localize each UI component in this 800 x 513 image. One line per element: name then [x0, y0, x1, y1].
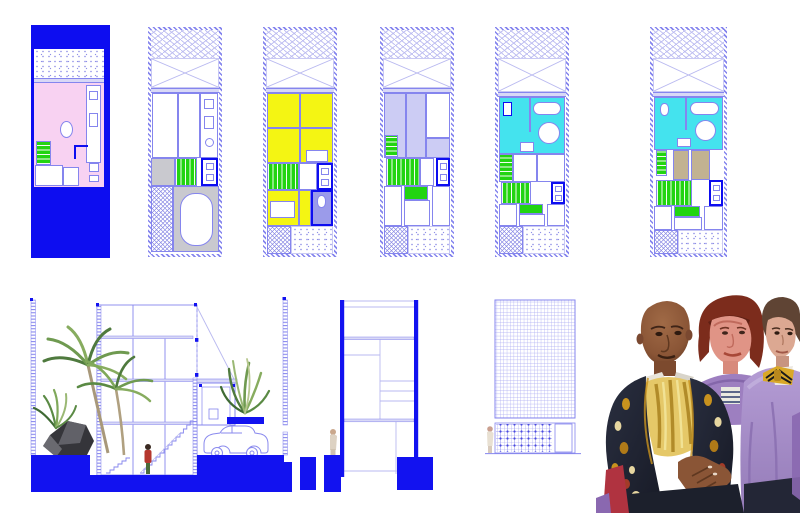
plan6-shower-icon: [695, 120, 716, 141]
plan1-wc-icon: [89, 163, 99, 172]
plan5-court-hatch: [499, 226, 523, 254]
plan3-partition-h: [268, 127, 332, 129]
plan6-bed-b: [691, 150, 710, 180]
plan1-room-b: [63, 167, 79, 186]
plan5-wc-icon: [555, 186, 562, 192]
plan4-slab: [426, 138, 450, 158]
plan4-wc-icon: [440, 163, 447, 170]
plan1-sink-icon: [89, 113, 98, 127]
plan5-basin-icon: [520, 142, 534, 152]
plan2-basin2-icon: [206, 174, 214, 181]
plan6-toilet-icon: [660, 103, 669, 116]
plan4-court-hatch: [384, 226, 408, 254]
perforated-screen: [496, 424, 552, 452]
plan3-yellow-room-b: [267, 190, 299, 226]
plan5-room-e: [547, 204, 565, 226]
plan6-bathtub-icon: [690, 102, 719, 115]
plan2-terrace: [151, 30, 219, 58]
plan4-room-e: [432, 186, 450, 226]
tower-floor-slabs: [344, 337, 414, 422]
plan5-toilet-icon: [503, 102, 512, 116]
plan6-room-a: [654, 206, 672, 230]
plan1-basin-icon: [89, 175, 99, 182]
purple-corner: [596, 493, 611, 513]
plan6-court-hatch: [654, 230, 678, 254]
floor-plan-3: [263, 27, 337, 257]
plan2-court-hatch: [151, 186, 173, 252]
plan6-basin-icon: [677, 138, 691, 147]
plan6-partition: [685, 98, 687, 130]
long-section-with-landscape: [28, 293, 298, 498]
plan5-green-block: [519, 204, 543, 214]
plan4-stair: [386, 158, 420, 186]
plan3-toilet-icon: [317, 195, 326, 208]
building-wall-left: [97, 305, 101, 475]
plan6-void: [653, 58, 724, 92]
plan6-basin2-icon: [713, 195, 720, 201]
mesh-facade: [495, 300, 575, 418]
plan3-terrace: [266, 30, 334, 58]
presentation-board: [0, 0, 800, 513]
plan4-room-d: [404, 200, 430, 226]
plan2-bath-slab: [173, 186, 219, 252]
plan3-wc-icon: [321, 168, 329, 175]
plan2-wc-icon: [206, 163, 214, 170]
plan3-void: [266, 58, 334, 88]
plan5-wc: [551, 182, 565, 204]
plan6-bathroom: [654, 97, 723, 150]
plan2-sink-icon: [204, 116, 214, 129]
plan4-terrace: [383, 30, 451, 58]
plan5-room-c: [499, 204, 517, 226]
site-column-right-low: [283, 432, 288, 455]
plan3-yellow-room: [267, 93, 333, 163]
site-column-left: [31, 300, 36, 455]
plan3-yellow-strip: [299, 190, 311, 226]
plan5-stair-upper: [499, 154, 513, 182]
person-figure-elevation: [487, 426, 494, 453]
plan5-bathroom: [499, 97, 565, 154]
tower-wall-right: [414, 300, 418, 477]
plan5-court-stipple: [523, 226, 565, 254]
plan1-table-icon: [60, 121, 73, 138]
planter-sill: [227, 417, 264, 424]
cross-section-tower: [296, 293, 444, 498]
plan1-room-a: [35, 165, 63, 186]
plan4-hall: [420, 158, 434, 186]
plan4-stair-upper: [385, 135, 398, 157]
plan6-terrace: [653, 30, 724, 58]
floor-plan-2: [148, 27, 222, 257]
plan5-stair: [501, 182, 531, 204]
plan5-room-a: [513, 154, 537, 182]
plan6-wc: [709, 180, 723, 206]
plan4-green-block: [404, 186, 428, 200]
plan2-stair: [175, 158, 197, 186]
tower-lines: [342, 301, 416, 474]
plan5-terrace: [498, 30, 566, 58]
plan5-void: [498, 58, 566, 92]
plan1-terrace-stipple: [34, 49, 104, 78]
plan6-court-stipple: [678, 230, 723, 254]
plan4-basin-icon: [440, 174, 447, 181]
plan3-court-stipple: [291, 226, 333, 254]
plan4-wc: [436, 158, 450, 186]
plan6-stair-upper: [656, 150, 667, 176]
plan3-basin-icon: [321, 179, 329, 186]
building-wall-right: [193, 378, 197, 475]
plan4-void: [383, 58, 451, 88]
plan2-stove-icon: [204, 99, 214, 109]
plan3-table-icon: [270, 201, 295, 218]
street-elevation-screen: [483, 295, 583, 460]
plan1-living-room: [34, 83, 104, 187]
plan3-bathroom: [311, 190, 333, 226]
plan4-room-b: [406, 93, 426, 158]
floor-plan-5: [495, 27, 569, 257]
tower-wall-left: [340, 300, 344, 477]
plan6-green-block: [674, 206, 700, 217]
plan2-void: [151, 58, 219, 88]
plan3-stair: [267, 163, 299, 190]
plan1-stair: [36, 141, 51, 165]
ground-block-b: [324, 455, 341, 492]
plan4-desk-room: [426, 93, 450, 138]
floor-plan-1: [31, 25, 110, 258]
plan3-sink-icon: [306, 150, 328, 162]
plan2-room-a: [152, 93, 178, 158]
plan3-court-hatch: [267, 226, 291, 254]
plan6-bed-a: [673, 150, 689, 180]
floor-plan-4: [380, 27, 454, 257]
plan4-room-c: [384, 186, 402, 226]
plan3-wc: [317, 163, 333, 190]
plan6-room-b: [674, 217, 702, 230]
plan6-room-c: [704, 206, 723, 230]
plan2-wc: [201, 158, 218, 186]
plan5-basin2-icon: [555, 195, 562, 201]
plan2-basin-icon: [205, 138, 214, 147]
site-column-right: [283, 300, 288, 425]
plan6-wc-icon: [713, 185, 720, 191]
ground-block-a: [300, 457, 316, 490]
plan2-bathtub-icon: [180, 193, 213, 246]
car-icon: [204, 426, 268, 459]
plan5-room-b: [537, 154, 565, 182]
plan6-stair: [656, 180, 692, 206]
plan5-shower-icon: [538, 122, 560, 144]
ground-block-c: [397, 457, 433, 490]
plan2-room-b: [178, 93, 200, 158]
portrait-painting-three-figures: [596, 292, 800, 513]
plan3-hall: [299, 163, 317, 190]
plan5-partition: [529, 98, 531, 132]
entry-door: [555, 424, 572, 452]
plan2-counter: [200, 93, 218, 158]
plan5-room-d: [519, 214, 545, 226]
plan1-partition: [74, 145, 88, 159]
floor-plan-6: [650, 27, 727, 257]
plan1-stove-icon: [89, 91, 98, 100]
plan2-landing: [151, 158, 175, 186]
plan4-court-stipple: [408, 226, 450, 254]
plan5-bathtub-icon: [533, 102, 561, 115]
person-figure-section2: [330, 429, 337, 457]
